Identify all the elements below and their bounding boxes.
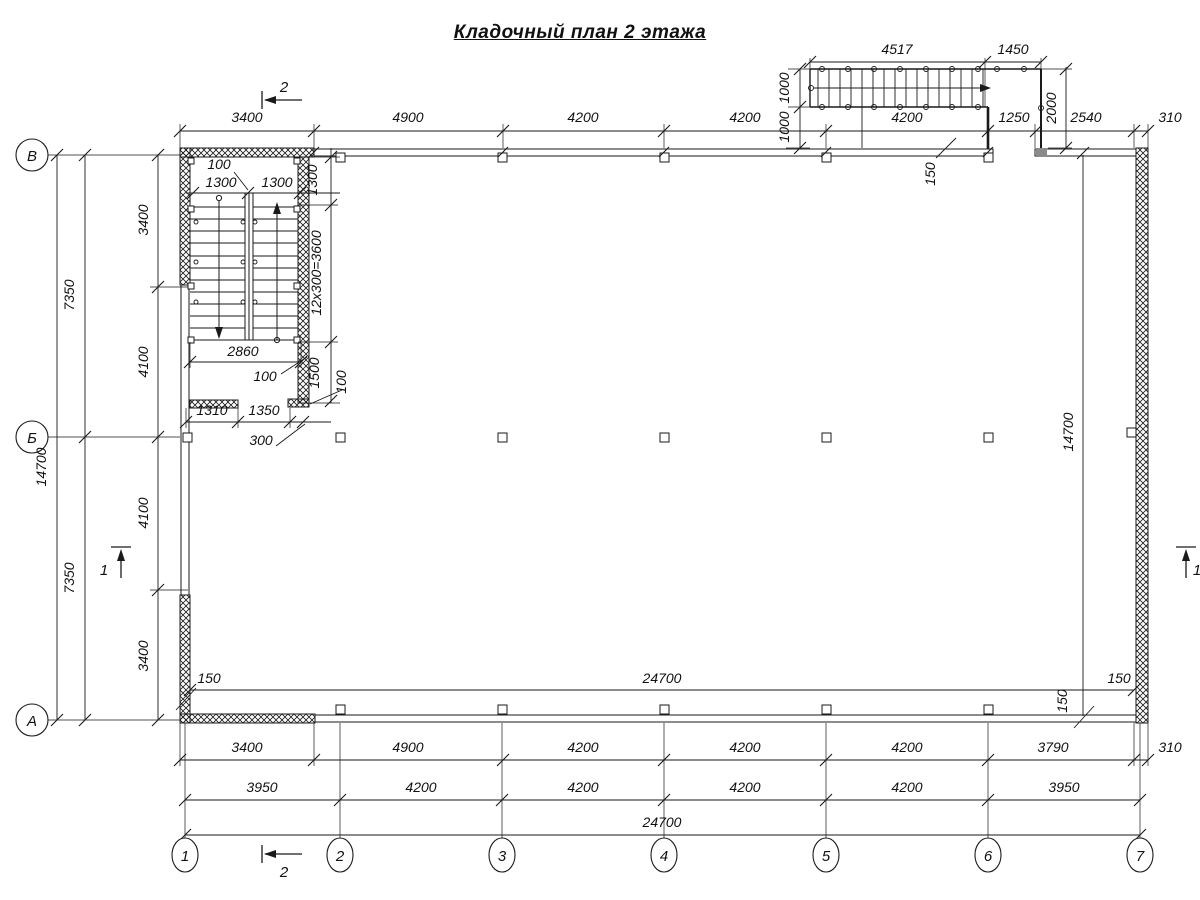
dim-inner-150-left: 150	[197, 670, 221, 686]
pilaster	[984, 433, 993, 442]
dim-left-4100-b: 4100	[135, 497, 151, 528]
dim-top-4200-c: 4200	[891, 109, 922, 125]
dim-bot2-4200-b: 4200	[567, 779, 598, 795]
floor-plan-drawing: 3400490042004200420012502540310451714501…	[0, 0, 1200, 900]
axis-col-3-label: 3	[498, 848, 507, 865]
pilaster	[498, 153, 507, 162]
dim-bot2-4200-d: 4200	[891, 779, 922, 795]
stair-baluster-dots	[194, 220, 257, 304]
dim-left-7350-b: 7350	[61, 562, 77, 593]
wall-top-middle	[314, 149, 993, 156]
dim-stairwell-12x300: 12x300=3600	[308, 230, 324, 315]
dim-inner-150-right: 150	[1107, 670, 1131, 686]
stair-landing-edges	[190, 193, 298, 340]
dim-stairwell-100-top: 100	[207, 156, 231, 172]
dim-right-14700: 14700	[1060, 412, 1076, 451]
dim-top-4200-a: 4200	[567, 109, 598, 125]
section-1-right-arrowhead	[1182, 549, 1190, 561]
wall-bottom-middle	[315, 715, 1136, 722]
axis-col-7-label: 7	[1136, 848, 1145, 865]
axis-col-5-label: 5	[822, 848, 831, 865]
dim-bot1-4200-a: 4200	[567, 739, 598, 755]
pilaster	[660, 705, 669, 714]
dim-stairwell-2860: 2860	[226, 343, 258, 359]
section-2-top-arrowhead	[264, 96, 276, 104]
dim-stairwell-1310: 1310	[196, 402, 227, 418]
lintel-mark	[1036, 150, 1047, 156]
dim-wall-150-top: 150	[922, 162, 938, 186]
stair-arrow-start-dot	[216, 195, 221, 200]
stair-down-arrowhead	[215, 327, 223, 339]
labels-layer: 3400490042004200420012502540310451714501…	[26, 41, 1200, 881]
wall-left-upper	[180, 148, 190, 285]
dim-left-3400-b: 3400	[135, 640, 151, 671]
stair-treads-left	[190, 207, 245, 328]
dim-top-3400: 3400	[231, 109, 262, 125]
dim-bot1-4900: 4900	[392, 739, 423, 755]
pilaster	[336, 153, 345, 162]
stair-treads-right	[253, 207, 298, 328]
axis-row-v-label: В	[27, 148, 37, 165]
dim-extstair-2000: 2000	[1043, 92, 1059, 124]
dim-bot1-3790: 3790	[1037, 739, 1068, 755]
wall-top-left	[180, 148, 314, 157]
axis-row-b-label: Б	[27, 430, 37, 447]
dim-bot2-3950-a: 3950	[246, 779, 277, 795]
dim-stairwell-1300-a: 1300	[205, 174, 236, 190]
dim-bot1-3400: 3400	[231, 739, 262, 755]
pilaster	[984, 705, 993, 714]
dim-top-310: 310	[1158, 109, 1182, 125]
pilaster	[336, 705, 345, 714]
pilaster	[183, 433, 192, 442]
section-2-top-label: 2	[279, 79, 289, 96]
dim-top-4200-b: 4200	[729, 109, 760, 125]
section-1-left-label: 1	[100, 562, 108, 579]
dim-extstair-1000-b: 1000	[776, 111, 792, 142]
dim-extstair-1450: 1450	[997, 41, 1028, 57]
dim-inner-24700: 24700	[642, 670, 682, 686]
dim-left-7350-a: 7350	[61, 279, 77, 310]
dim-top-1250: 1250	[998, 109, 1029, 125]
extstair-walk-arrowhead	[980, 84, 991, 92]
dim-inner-150-v: 150	[1054, 689, 1070, 713]
leader-lines	[176, 138, 1094, 728]
dim-stairwell-1300-v: 1300	[304, 164, 320, 195]
pilaster	[498, 705, 507, 714]
pilaster	[822, 705, 831, 714]
dim-stairwell-100-mid: 100	[253, 368, 277, 384]
wall-stairwell-inner-cap	[288, 399, 309, 407]
dim-bot1-4200-c: 4200	[891, 739, 922, 755]
dim-left-3400-a: 3400	[135, 204, 151, 235]
dim-stairwell-1350: 1350	[248, 402, 279, 418]
pilaster	[1127, 428, 1136, 437]
wall-right	[1136, 148, 1148, 723]
dim-stairwell-1300-b: 1300	[261, 174, 292, 190]
pilasters	[183, 153, 1136, 714]
dim-stairwell-300: 300	[249, 432, 273, 448]
axis-col-2-label: 2	[335, 848, 345, 865]
axis-col-1-label: 1	[181, 848, 189, 865]
stair-stringers	[245, 193, 253, 340]
section-1-right-label: 1	[1193, 562, 1200, 579]
drawing-sheet: Кладочный план 2 этажа	[0, 0, 1200, 900]
dim-left-14700: 14700	[33, 447, 49, 486]
wall-bottom-left	[180, 714, 315, 723]
pilaster	[336, 433, 345, 442]
dim-stairwell-1500: 1500	[306, 357, 322, 388]
stair-up-arrowhead	[273, 202, 281, 214]
dim-left-4100-a: 4100	[135, 346, 151, 377]
dim-bot1-310: 310	[1158, 739, 1182, 755]
axis-col-4-label: 4	[660, 848, 668, 865]
section-2-bottom-arrowhead	[264, 850, 276, 858]
dim-stairwell-100-v: 100	[333, 370, 349, 394]
dim-bot2-4200-c: 4200	[729, 779, 760, 795]
dim-bot2-3950-b: 3950	[1048, 779, 1079, 795]
dim-extstair-1000-a: 1000	[776, 72, 792, 103]
section-2-bottom-label: 2	[279, 864, 289, 881]
dim-bot1-4200-b: 4200	[729, 739, 760, 755]
dim-bot2-4200-a: 4200	[405, 779, 436, 795]
dim-top-2540: 2540	[1069, 109, 1101, 125]
dim-extstair-4517: 4517	[881, 41, 913, 57]
dim-bot3-24700: 24700	[642, 814, 682, 830]
pilaster	[498, 433, 507, 442]
dim-top-4900: 4900	[392, 109, 423, 125]
pilaster	[822, 433, 831, 442]
external-stair	[809, 67, 1044, 150]
section-1-left-arrowhead	[117, 549, 125, 561]
axis-row-a-label: А	[26, 713, 37, 730]
axis-col-6-label: 6	[984, 848, 993, 865]
pilaster	[660, 433, 669, 442]
